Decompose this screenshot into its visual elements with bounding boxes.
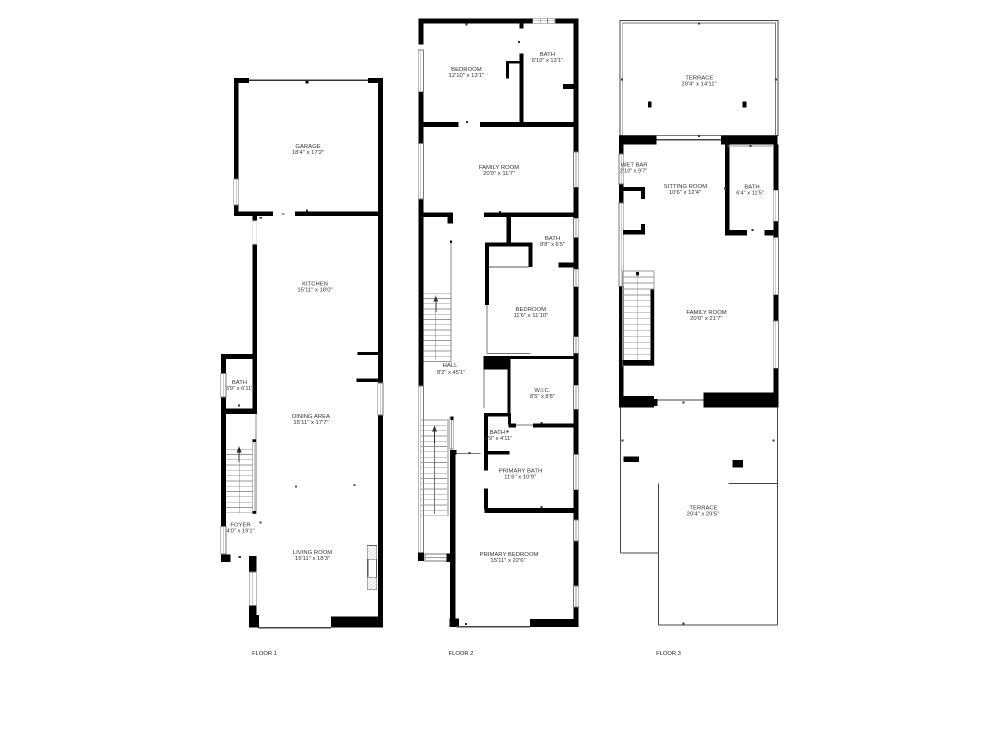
svg-text:12'10" x 13'1": 12'10" x 13'1" — [449, 73, 485, 79]
svg-text:6'4" x 11'5": 6'4" x 11'5" — [736, 191, 764, 197]
svg-text:FLOOR 1: FLOOR 1 — [252, 651, 277, 657]
svg-text:11'6" x 10'9": 11'6" x 10'9" — [504, 475, 536, 481]
svg-text:8'2" x 45'1": 8'2" x 45'1" — [437, 370, 465, 376]
svg-text:8'8" x 6'5": 8'8" x 6'5" — [540, 242, 565, 248]
svg-text:4'0" x 19'1": 4'0" x 19'1" — [226, 529, 254, 535]
svg-text:15'11" x 22'6": 15'11" x 22'6" — [490, 558, 525, 564]
svg-text:20'4" x 29'5": 20'4" x 29'5" — [687, 512, 719, 518]
svg-text:HALL: HALL — [443, 363, 458, 369]
svg-text:20'4" x 14'11": 20'4" x 14'11" — [681, 82, 716, 88]
svg-text:10'6" x 12'4": 10'6" x 12'4" — [669, 190, 701, 196]
svg-text:3'9" x 4'11": 3'9" x 4'11" — [485, 436, 513, 442]
svg-text:6'10" x 13'1": 6'10" x 13'1" — [532, 58, 563, 64]
svg-text:18'4" x 17'2": 18'4" x 17'2" — [292, 150, 324, 156]
svg-text:11'6" x 11'10": 11'6" x 11'10" — [513, 313, 548, 319]
svg-text:20'0" x 21'7": 20'0" x 21'7" — [690, 316, 722, 322]
svg-text:15'11" x 18'3": 15'11" x 18'3" — [295, 556, 330, 562]
svg-text:3'9" x 6'11": 3'9" x 6'11" — [226, 386, 254, 392]
svg-text:8'5" x 8'8": 8'5" x 8'8" — [530, 394, 555, 400]
svg-text:FLOOR 3: FLOOR 3 — [656, 651, 681, 657]
svg-text:20'0" x 11'7": 20'0" x 11'7" — [483, 171, 515, 177]
svg-text:2'10" x 9'7": 2'10" x 9'7" — [620, 169, 647, 175]
svg-text:15'11" x 17'7": 15'11" x 17'7" — [293, 420, 328, 426]
svg-text:15'11" x 18'0": 15'11" x 18'0" — [297, 288, 332, 294]
svg-text:FLOOR 2: FLOOR 2 — [449, 651, 474, 657]
